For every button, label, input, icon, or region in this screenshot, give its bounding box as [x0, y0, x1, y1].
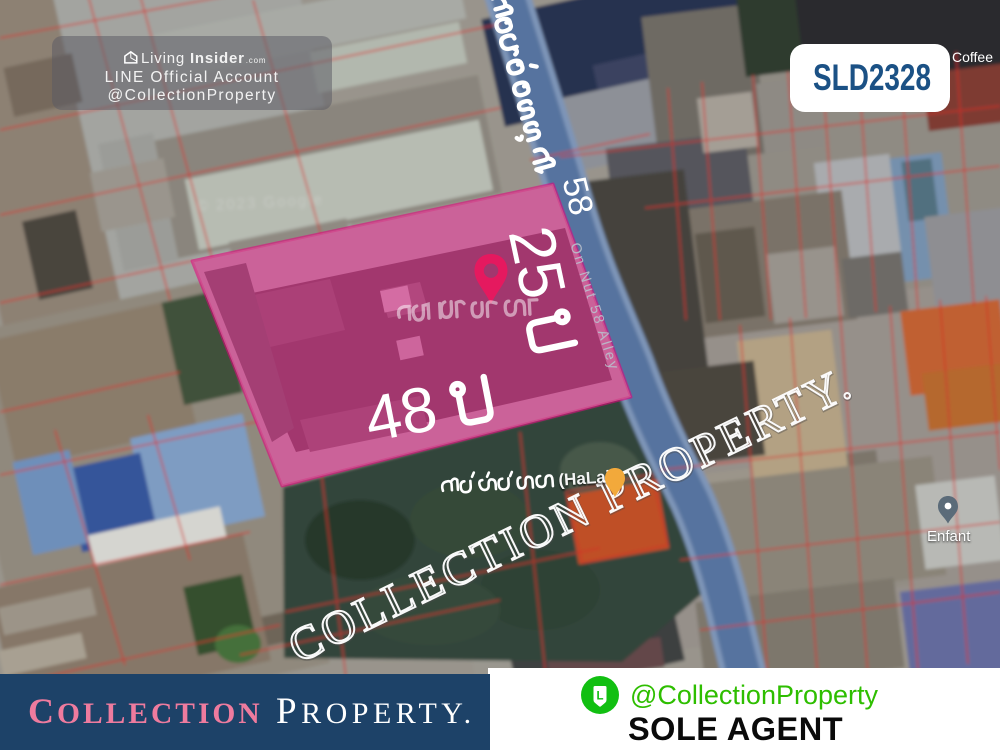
svg-text:Enfant: Enfant	[927, 528, 971, 545]
svg-text:25: 25	[495, 220, 580, 305]
svg-text:@CollectionProperty: @CollectionProperty	[108, 87, 277, 104]
svg-text:SLD2328: SLD2328	[813, 57, 931, 98]
svg-text:PROPERTY.: PROPERTY.	[276, 691, 476, 732]
svg-text:LINE Official Account: LINE Official Account	[105, 69, 280, 86]
svg-text:@CollectionProperty: @CollectionProperty	[630, 680, 879, 710]
svg-text:48: 48	[359, 371, 443, 455]
svg-text:Coffee: Coffee	[952, 49, 993, 65]
svg-text:L: L	[596, 691, 603, 703]
svg-text:SOLE AGENT: SOLE AGENT	[628, 711, 843, 747]
